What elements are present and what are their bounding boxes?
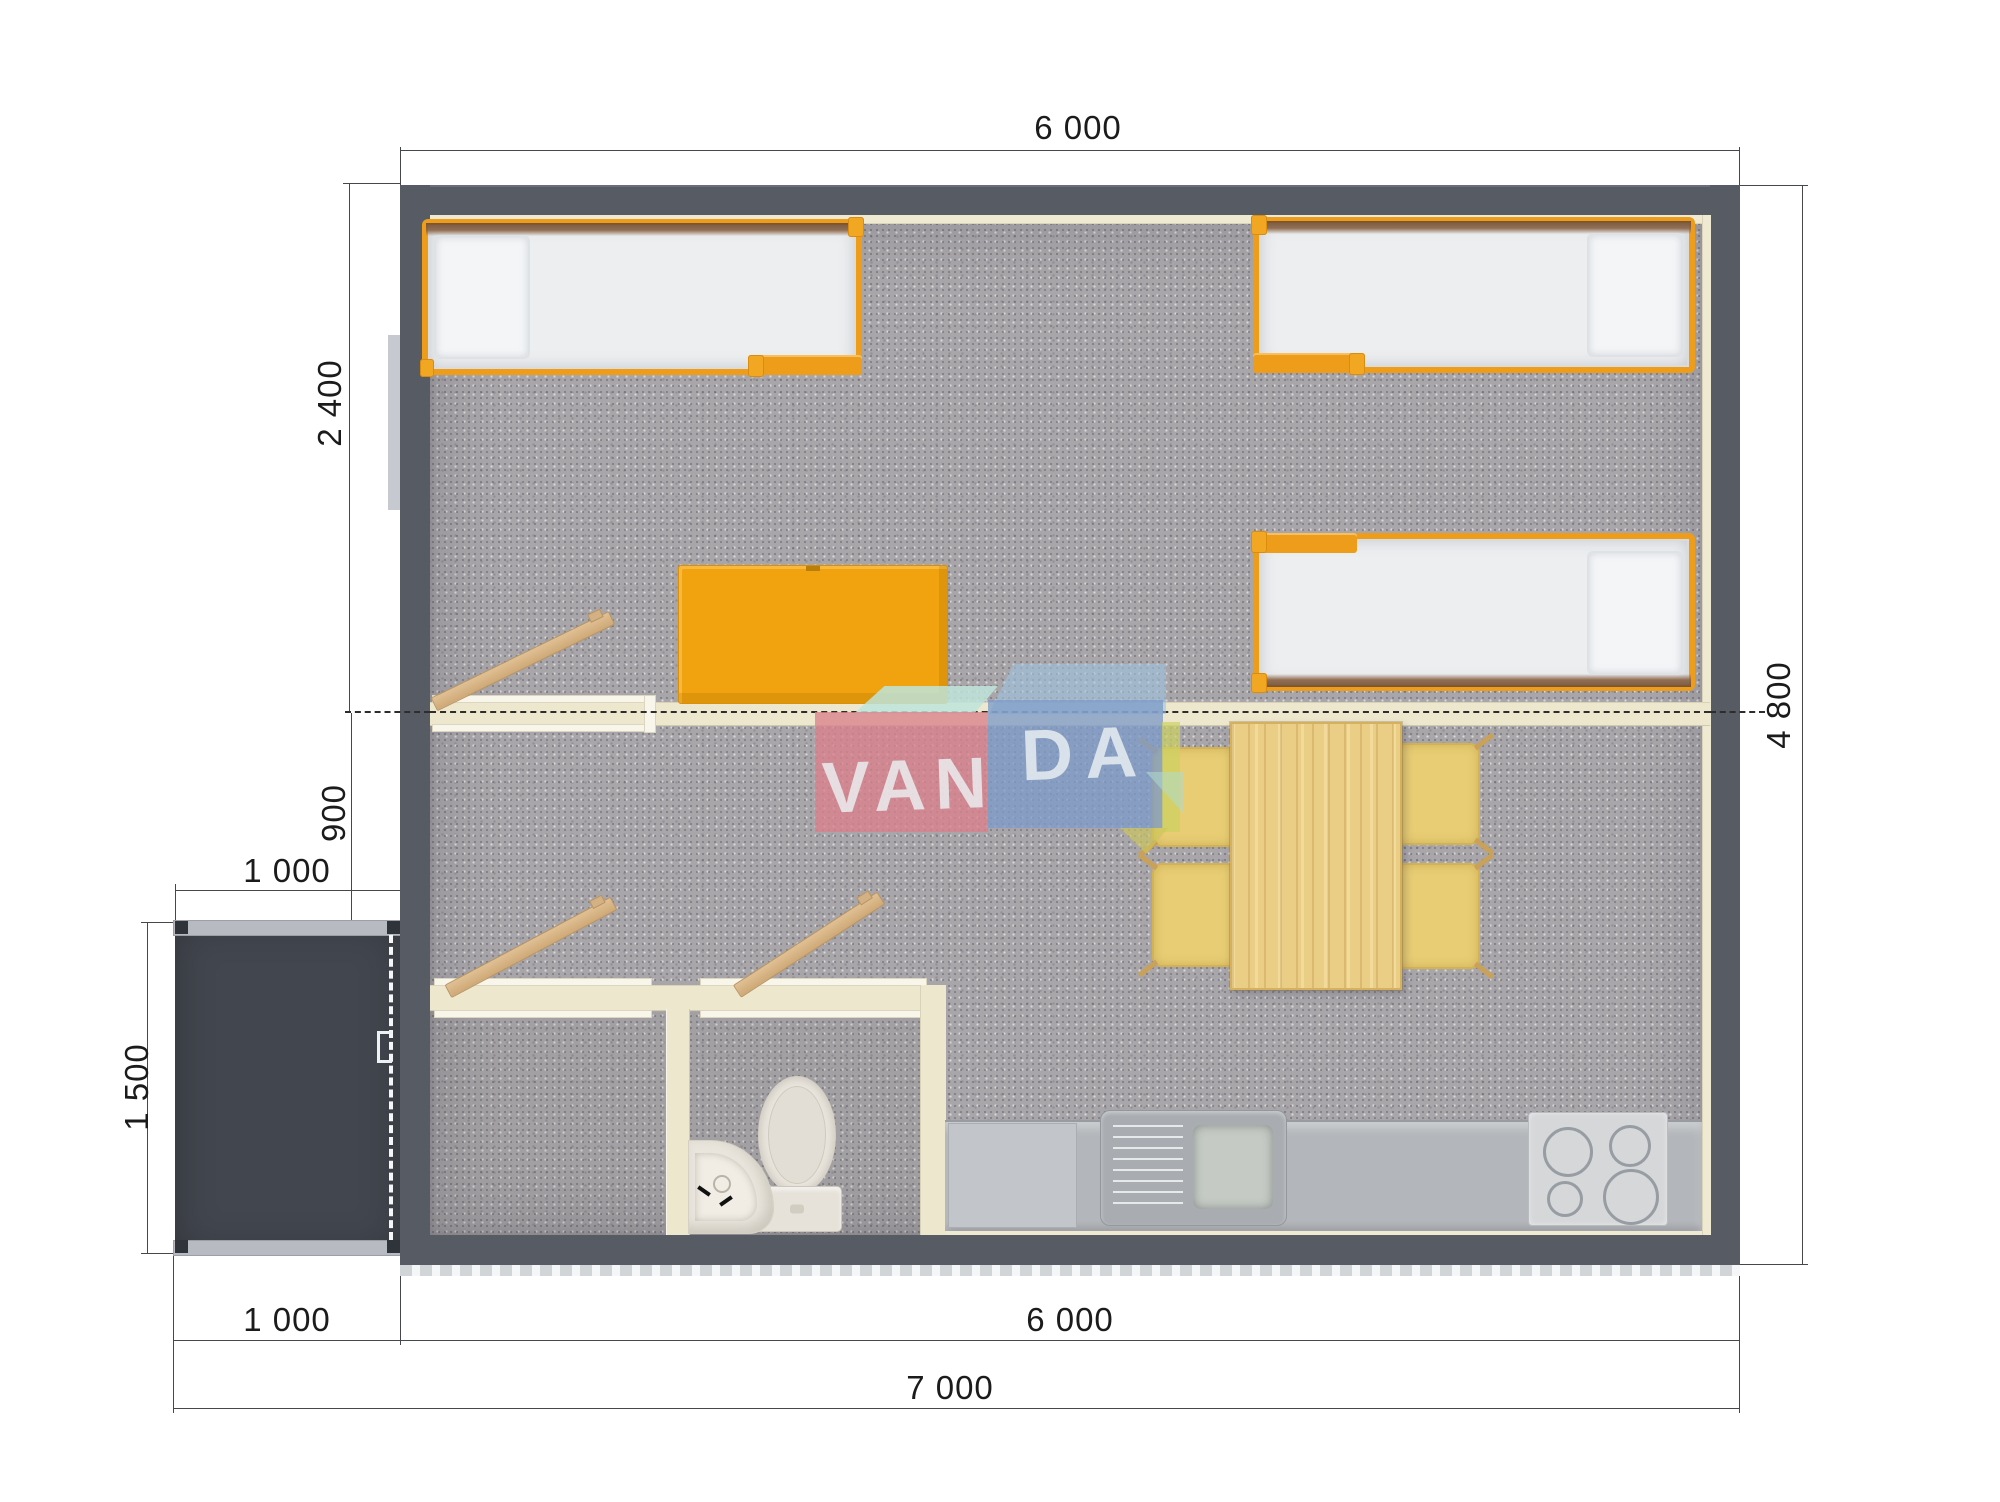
extension-line: [400, 147, 401, 185]
dimension-label-bedroom-depth: 2 400: [312, 333, 348, 473]
dimension-line-bottom-split: [173, 1340, 1740, 1341]
extension-line: [141, 1253, 175, 1254]
burner-icon: [1609, 1125, 1651, 1167]
toilet-seat: [768, 1086, 826, 1184]
door-threshold: [700, 1010, 927, 1018]
porch-step-top: [173, 920, 402, 936]
dimension-label-top-width: 6 000: [1008, 110, 1148, 146]
drainboard: [1113, 1125, 1183, 1211]
bed-corner-post: [1251, 531, 1267, 553]
burner-icon: [1543, 1127, 1593, 1177]
door-frame-post: [644, 695, 656, 733]
bed-corner-post: [1251, 215, 1267, 235]
bed-foot-rail: [1253, 533, 1357, 553]
porch-deck: [175, 922, 400, 1253]
window-left-wall: [388, 335, 400, 510]
door-threshold: [432, 724, 652, 732]
dimension-label-bottom-porch-width: 1 000: [217, 1302, 357, 1338]
bed-top-left: [422, 219, 862, 375]
partition-centerline-ext-left: [345, 711, 430, 713]
partition-centerline: [430, 711, 1710, 713]
dimension-label-bottom-house-width: 6 000: [1000, 1302, 1140, 1338]
dimension-label-bottom-total-width: 7 000: [880, 1370, 1020, 1406]
entrance-door-open-dashed: [389, 935, 393, 1240]
dimension-line-bedroom-depth: [349, 183, 350, 713]
partition-wall-bedroom: [430, 702, 1710, 726]
bed-corner-post: [1251, 673, 1267, 693]
extension-line: [173, 1253, 174, 1413]
chair-bottom-left: [1152, 863, 1234, 967]
house-wall-right: [1710, 185, 1740, 1265]
dimension-line-right-depth: [1802, 185, 1803, 1265]
partition-centerline-ext-right: [1710, 711, 1765, 713]
bed-foot-rail: [756, 355, 862, 375]
dimension-line-porch-width: [175, 890, 400, 891]
toilet: [758, 1076, 836, 1194]
chair-top-right: [1398, 743, 1480, 845]
dining-table: [1230, 722, 1402, 990]
burner-icon: [1547, 1181, 1583, 1217]
extension-line: [1739, 147, 1740, 185]
bed-top-right: [1253, 217, 1695, 373]
partition-wall-bathroom: [430, 985, 945, 1011]
porch-post: [175, 1240, 188, 1253]
bed-corner-post: [420, 359, 434, 377]
extension-line: [343, 183, 401, 184]
extension-line: [1740, 1264, 1808, 1265]
bed-corner-post: [748, 355, 764, 377]
extension-line: [175, 884, 176, 922]
door-threshold: [434, 1010, 652, 1018]
porch-post: [387, 1240, 400, 1253]
dimension-label-porch-depth: 1 500: [119, 1017, 155, 1157]
burner-icon: [1603, 1169, 1659, 1225]
desk-handle: [806, 566, 820, 571]
orange-desk: [678, 565, 948, 704]
drain-icon: [713, 1175, 731, 1193]
bed-corner-post: [1349, 353, 1365, 375]
entrance-door-handle-icon: [377, 1031, 392, 1063]
stove-hob: [1528, 1112, 1668, 1226]
dimension-line-bottom-total: [173, 1408, 1740, 1409]
extension-line: [400, 1268, 401, 1345]
bed-foot-rail: [1253, 353, 1357, 373]
sink-basin: [1193, 1125, 1273, 1209]
house-wall-bottom: [400, 1235, 1740, 1265]
dimension-line-top: [400, 150, 1740, 151]
pillow: [434, 235, 530, 359]
house-wall-top: [400, 185, 1740, 217]
floor-plan-canvas: 6 000 2 400 900 1 000 1 500 4 800 1 000 …: [0, 0, 2000, 1502]
chair-top-left: [1152, 747, 1234, 847]
porch-post: [387, 921, 400, 934]
dimension-label-porch-width: 1 000: [217, 853, 357, 889]
dimension-label-right-depth: 4 800: [1761, 635, 1797, 775]
bed-middle-right: [1253, 533, 1695, 691]
flush-button-icon: [790, 1205, 804, 1214]
pillow: [1587, 551, 1683, 675]
pillow: [1587, 233, 1683, 357]
kitchen-sink-unit: [1100, 1110, 1287, 1226]
kitchen-cabinet-panel: [948, 1123, 1077, 1228]
bed-headwall-shadow: [1257, 674, 1691, 687]
porch-step-bottom: [173, 1240, 402, 1256]
bathroom-wall-right: [920, 985, 946, 1235]
chair-bottom-right: [1398, 863, 1480, 969]
cladding-edge-bottom: [400, 1265, 1740, 1276]
porch-post: [175, 921, 188, 934]
bathroom-divider-wall: [666, 1009, 690, 1235]
extension-line: [1740, 185, 1808, 186]
bed-corner-post: [848, 217, 864, 237]
